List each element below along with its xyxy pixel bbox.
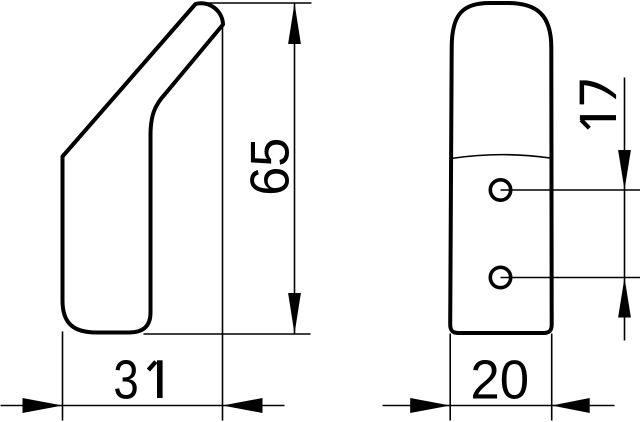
svg-text:65: 65 (239, 138, 301, 196)
svg-text:3: 3 (113, 348, 138, 410)
svg-text:20: 20 (470, 350, 529, 411)
